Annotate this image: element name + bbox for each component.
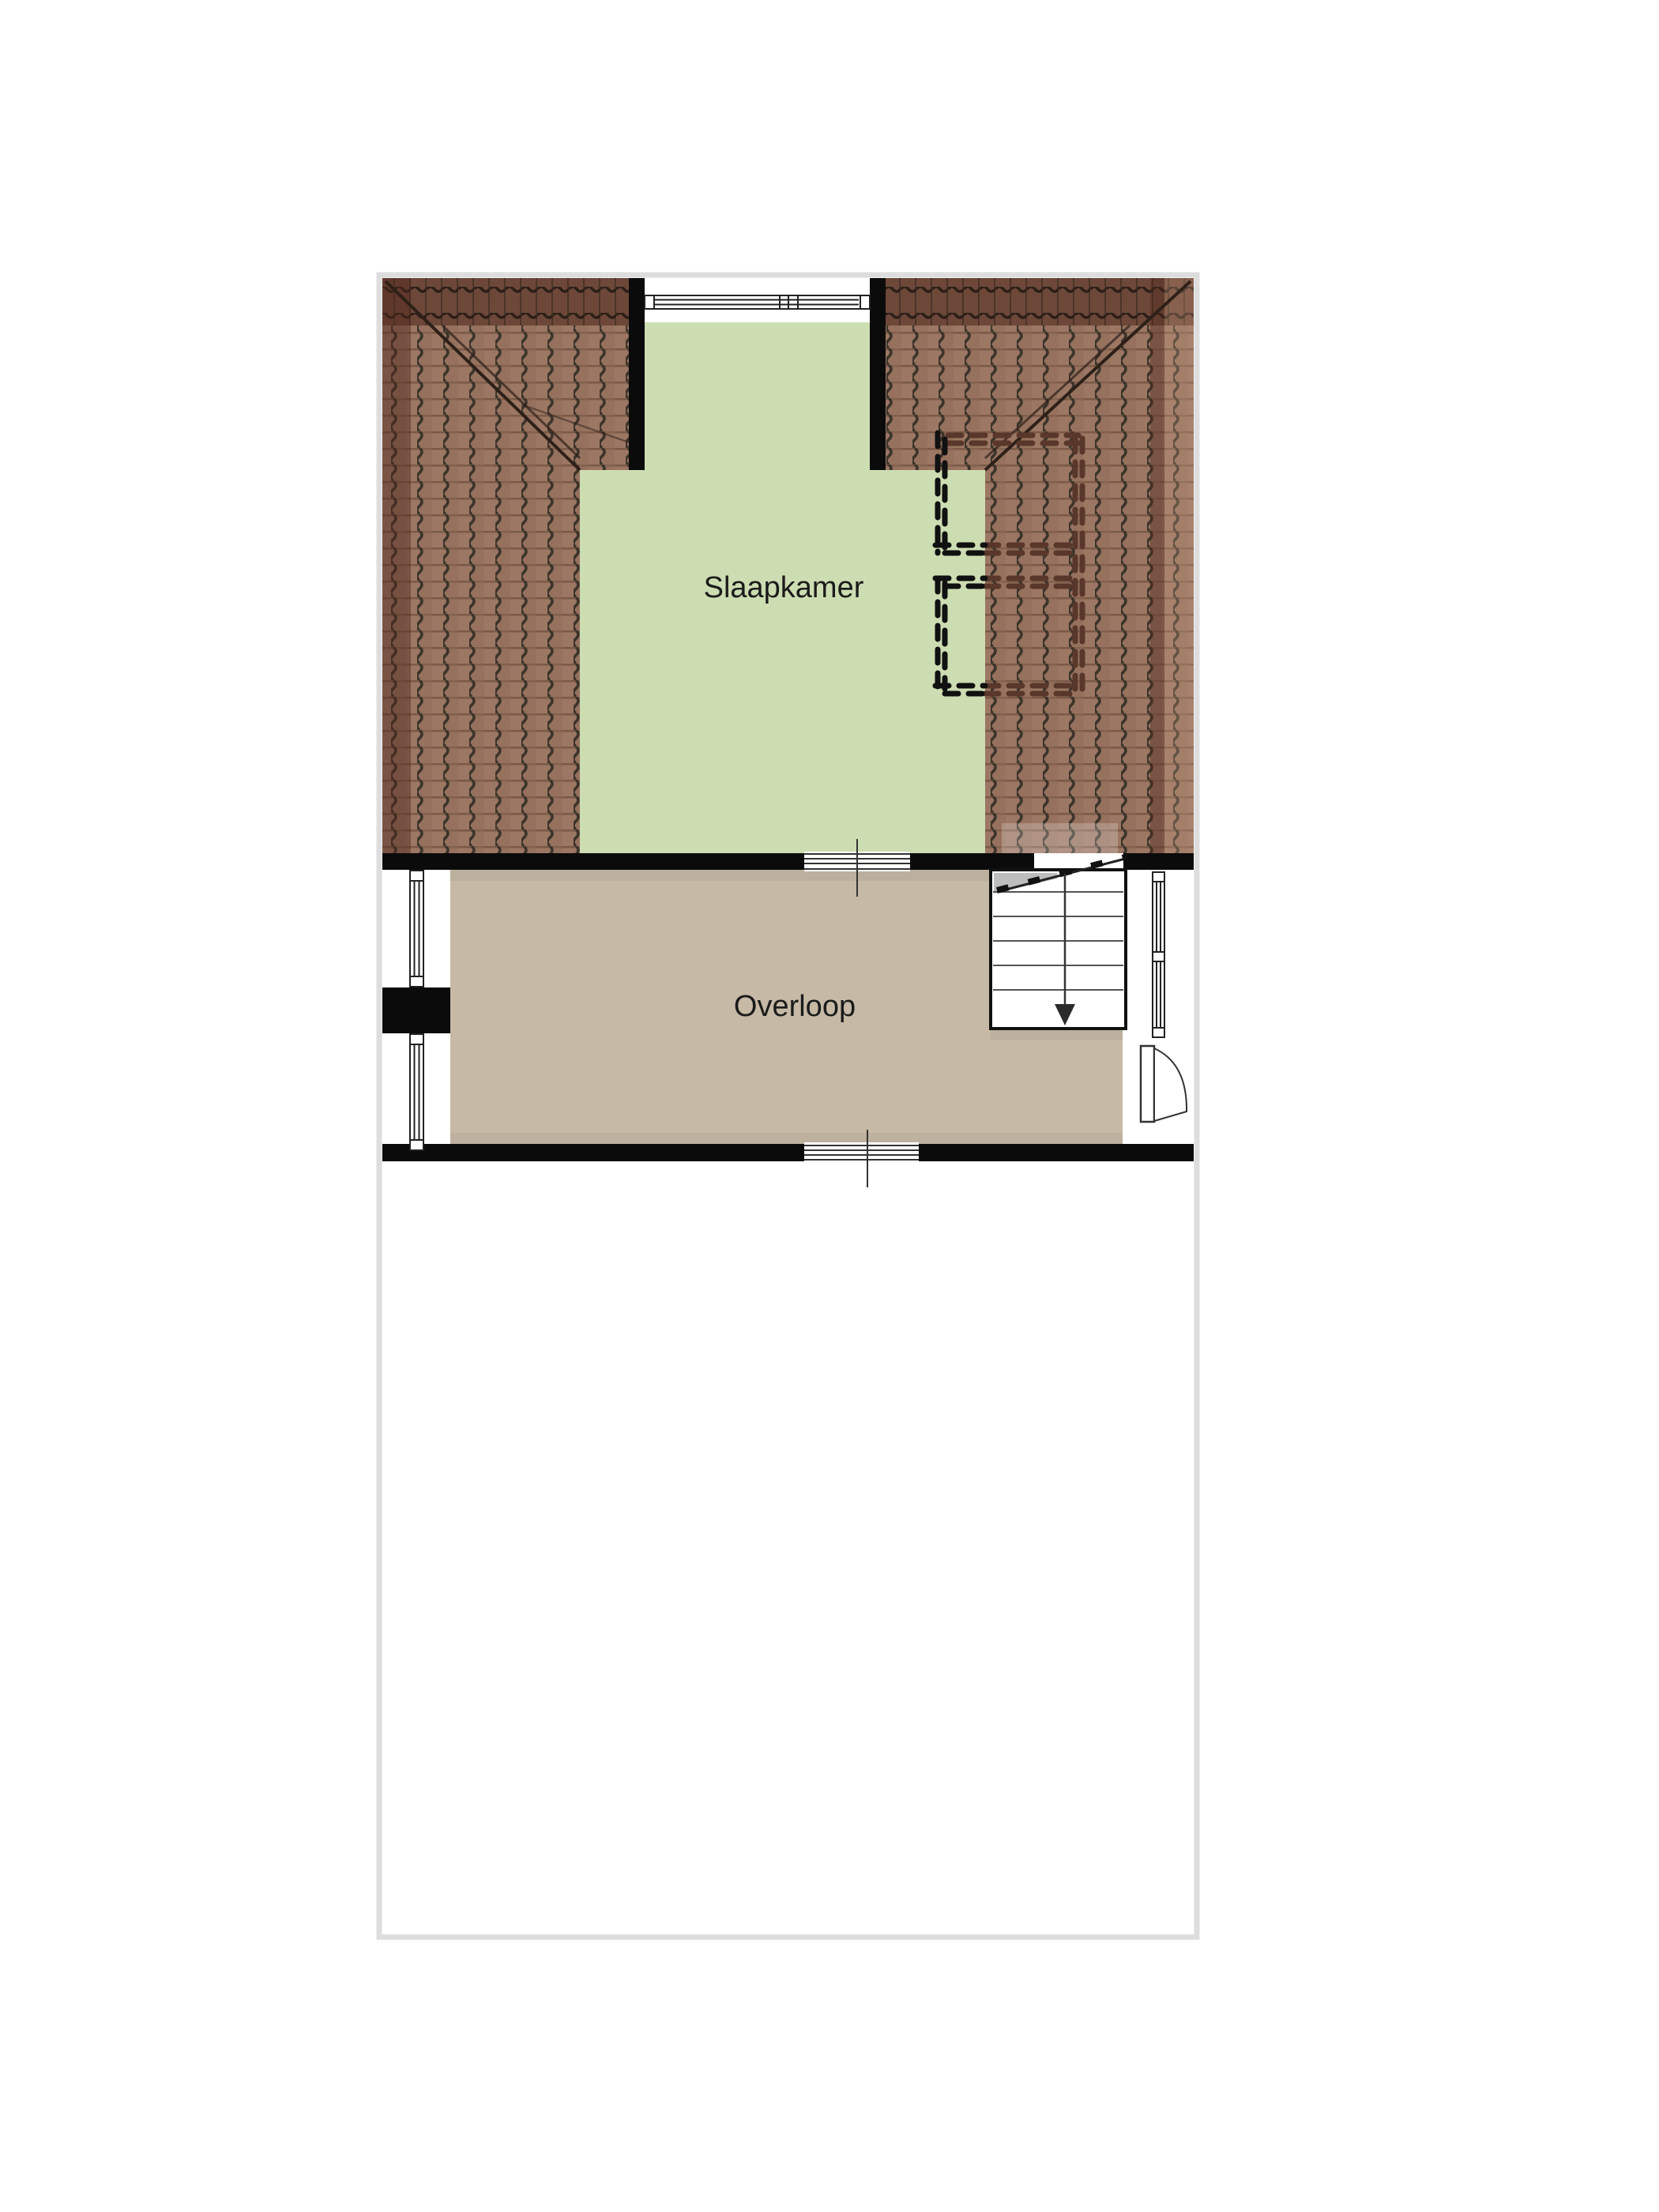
svg-text:Overloop: Overloop [734,990,856,1023]
svg-text:Slaapkamer: Slaapkamer [704,571,864,604]
